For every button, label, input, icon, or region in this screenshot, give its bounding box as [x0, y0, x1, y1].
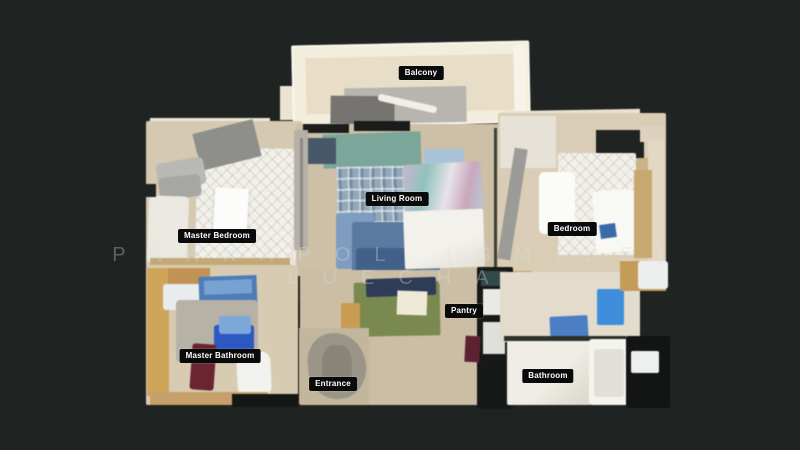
blue-basin — [219, 316, 251, 334]
bathtub-inner — [594, 349, 624, 397]
bath-bottom-wall — [232, 394, 298, 407]
balcony-right-ledge — [513, 45, 527, 117]
room-label-entrance[interactable]: Entrance — [309, 377, 357, 391]
living-top-wall-2 — [354, 121, 410, 131]
living-top-wall-1 — [303, 124, 349, 133]
bed-blue-item — [599, 223, 617, 239]
tv-dark-panel — [306, 138, 336, 164]
floorplan-viewer: PAKKAPOL (SMILE) LUECHA Balcony Living R… — [0, 0, 800, 450]
watermark-line2: LUECHA — [287, 268, 512, 288]
door-frame-pole — [300, 138, 303, 250]
room-label-living-room[interactable]: Living Room — [366, 192, 429, 206]
room-label-pantry[interactable]: Pantry — [445, 304, 483, 318]
hallway-mat-2 — [597, 289, 624, 325]
wall-notch-left — [144, 184, 156, 197]
room-label-bathroom[interactable]: Bathroom — [522, 369, 573, 383]
bedroom-wardrobe — [500, 116, 556, 168]
watermark-line1: PAKKAPOL (SMILE) — [112, 245, 687, 265]
table-paper — [397, 290, 428, 315]
balcony-floor — [291, 41, 531, 128]
room-label-master-bedroom[interactable]: Master Bedroom — [178, 229, 256, 243]
maroon-item — [464, 336, 480, 363]
tv-console — [322, 131, 421, 168]
room-label-bedroom[interactable]: Bedroom — [548, 222, 597, 236]
blue-towel-light — [204, 279, 252, 295]
room-label-balcony[interactable]: Balcony — [399, 66, 444, 80]
room-label-master-bathroom[interactable]: Master Bathroom — [180, 349, 261, 363]
bathroom-white-box — [631, 351, 659, 373]
master-bed-blanket — [213, 187, 249, 233]
